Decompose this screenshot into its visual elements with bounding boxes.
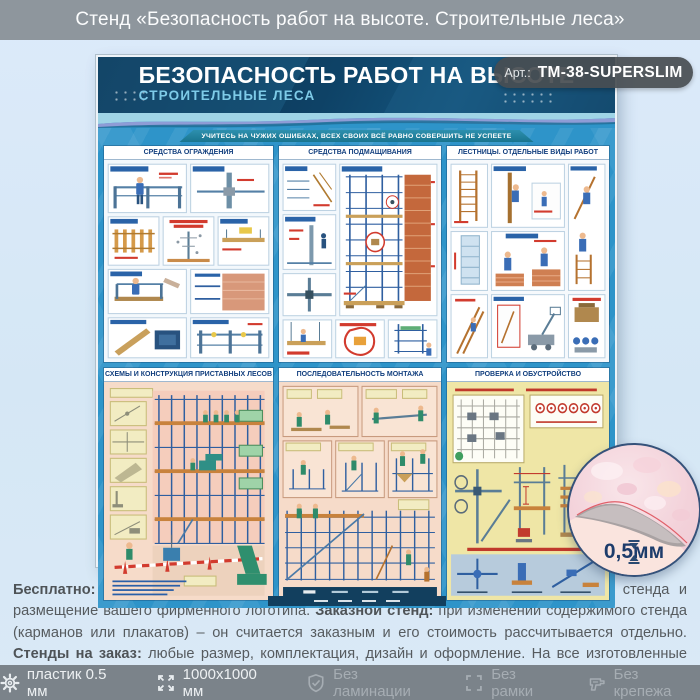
- spec-material-label: пластик 0.5 мм: [27, 666, 131, 700]
- spec-no-fasteners-label: Без крепежа: [614, 666, 700, 700]
- product-image: Стенд «Безопасность работ на высоте. Стр…: [0, 0, 700, 700]
- article-badge: Арт.: ТМ-38-SUPERSLIM: [494, 57, 693, 88]
- poster-body: УЧИТЕСЬ НА ЧУЖИХ ОШИБКАХ, ВСЕХ СВОИХ ВСЁ…: [98, 128, 615, 608]
- assembly-sequence-illustration: [279, 382, 441, 600]
- spec-bar: пластик 0.5 мм 1000x1000 мм Без ламинаци…: [0, 665, 700, 700]
- frame-icon: [464, 673, 484, 693]
- description-bold-free: Бесплатно:: [13, 582, 95, 598]
- spec-size: 1000x1000 мм: [156, 666, 281, 700]
- spec-no-lamination: Без ламинации: [306, 666, 439, 700]
- wave-decoration: [98, 113, 615, 128]
- ladders-illustration: [447, 160, 609, 362]
- section-title: ЛЕСТНИЦЫ. ОТДЕЛЬНЫЕ ВИДЫ РАБОТ: [447, 146, 609, 160]
- thickness-icon: [569, 540, 699, 564]
- section-title: СРЕДСТВА ОГРАЖДЕНИЯ: [104, 146, 273, 160]
- spec-no-fasteners: Без крепежа: [587, 666, 700, 700]
- section-scaffolding-means: СРЕДСТВА ПОДМАЩИВАНИЯ: [279, 146, 441, 362]
- section-scaffold-schemes: СХЕМЫ И КОНСТРУКЦИЯ ПРИСТАВНЫХ ЛЕСОВ: [104, 368, 273, 600]
- section-title: СРЕДСТВА ПОДМАЩИВАНИЯ: [279, 146, 441, 160]
- poster-subtitle: СТРОИТЕЛЬНЫЕ ЛЕСА: [139, 88, 575, 103]
- scaffold-schemes-illustration: [104, 382, 273, 600]
- spec-material: пластик 0.5 мм: [0, 666, 131, 700]
- safety-stand: БЕЗОПАСНОСТЬ РАБОТ НА ВЫСОТЕ СТРОИТЕЛЬНЫ…: [96, 55, 617, 567]
- expand-icon: [156, 673, 176, 693]
- spec-no-frame-label: Без рамки: [491, 666, 562, 700]
- product-title-banner: Стенд «Безопасность работ на высоте. Стр…: [0, 0, 700, 40]
- section-title: ПОСЛЕДОВАТЕЛЬНОСТЬ МОНТАЖА: [279, 368, 441, 382]
- poster-motto: УЧИТЕСЬ НА ЧУЖИХ ОШИБКАХ, ВСЕХ СВОИХ ВСЁ…: [179, 130, 533, 142]
- section-title: ПРОВЕРКА И ОБУСТРОЙСТВО: [447, 368, 609, 382]
- section-assembly-sequence: ПОСЛЕДОВАТЕЛЬНОСТЬ МОНТАЖА: [279, 368, 441, 600]
- scaffolding-means-illustration: [279, 160, 441, 362]
- fencing-illustration: [104, 160, 273, 362]
- section-title: СХЕМЫ И КОНСТРУКЦИЯ ПРИСТАВНЫХ ЛЕСОВ: [104, 368, 273, 382]
- spec-no-frame: Без рамки: [464, 666, 561, 700]
- spec-size-label: 1000x1000 мм: [183, 666, 282, 700]
- section-ladders: ЛЕСТНИЦЫ. ОТДЕЛЬНЫЕ ВИДЫ РАБОТ: [447, 146, 609, 362]
- shield-icon: [306, 673, 326, 693]
- poster-sections-grid: СРЕДСТВА ОГРАЖДЕНИЯ: [98, 144, 615, 608]
- article-code: ТМ-38-SUPERSLIM: [538, 64, 683, 82]
- drill-icon: [587, 673, 607, 693]
- product-title: Стенд «Безопасность работ на высоте. Стр…: [75, 9, 624, 31]
- poster-contacts-strip: [268, 596, 446, 606]
- section-fencing: СРЕДСТВА ОГРАЖДЕНИЯ: [104, 146, 273, 362]
- material-thickness-callout: 0,5мм: [567, 443, 700, 577]
- spec-no-lamination-label: Без ламинации: [333, 666, 439, 700]
- article-label: Арт.:: [504, 66, 530, 80]
- description-bold-order: Стенды на заказ:: [13, 646, 142, 662]
- gear-icon: [0, 673, 20, 693]
